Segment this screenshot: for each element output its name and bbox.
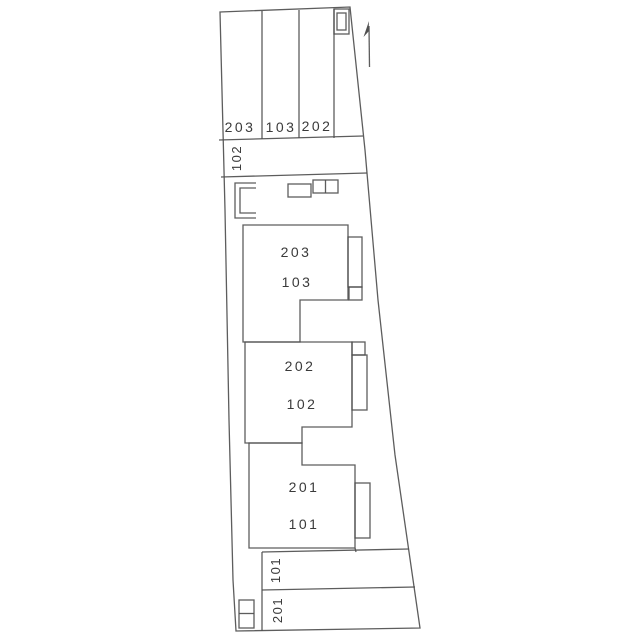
top-utility-box-inner [337, 13, 346, 30]
top-stall-label-1: 203 [225, 119, 256, 135]
north-arrow-head [364, 21, 370, 37]
side-stall-label: 102 [229, 145, 244, 171]
north-arrow-shaft [369, 26, 370, 67]
bottom-stall-label-1: 101 [268, 557, 283, 583]
top-stall-label-3: 202 [302, 118, 333, 134]
balcony-2-storage-box [352, 342, 365, 355]
bottom-stalls-top-line [262, 549, 409, 552]
bottom-stall-label-2: 201 [270, 597, 285, 623]
building-2-lower-unit-label: 102 [287, 396, 318, 412]
balcony-1-storage-box [349, 287, 362, 300]
building-3-lower-unit-label: 101 [289, 516, 320, 532]
building-1-lower-unit-label: 103 [282, 274, 313, 290]
building-3-outline [249, 443, 355, 548]
site-plan-canvas: 203 103 202 102 203 103 202 102 201 101 … [0, 0, 640, 640]
site-boundary [220, 7, 420, 631]
entrance-stairs-icon-inner [240, 188, 256, 213]
balcony-2 [352, 355, 367, 410]
bottom-stalls-divider [262, 587, 415, 590]
balcony-1 [348, 237, 362, 287]
site-plan-scan: 203 103 202 102 203 103 202 102 201 101 … [0, 0, 640, 640]
building-2-upper-unit-label: 202 [285, 358, 316, 374]
building-3-upper-unit-label: 201 [289, 479, 320, 495]
top-stall-label-2: 103 [266, 119, 297, 135]
balcony-3 [355, 483, 370, 538]
building-1-upper-unit-label: 203 [281, 244, 312, 260]
top-stalls-bottom-line [219, 136, 363, 140]
side-stall-bottom-line [221, 173, 367, 177]
entrance-box [288, 184, 311, 197]
